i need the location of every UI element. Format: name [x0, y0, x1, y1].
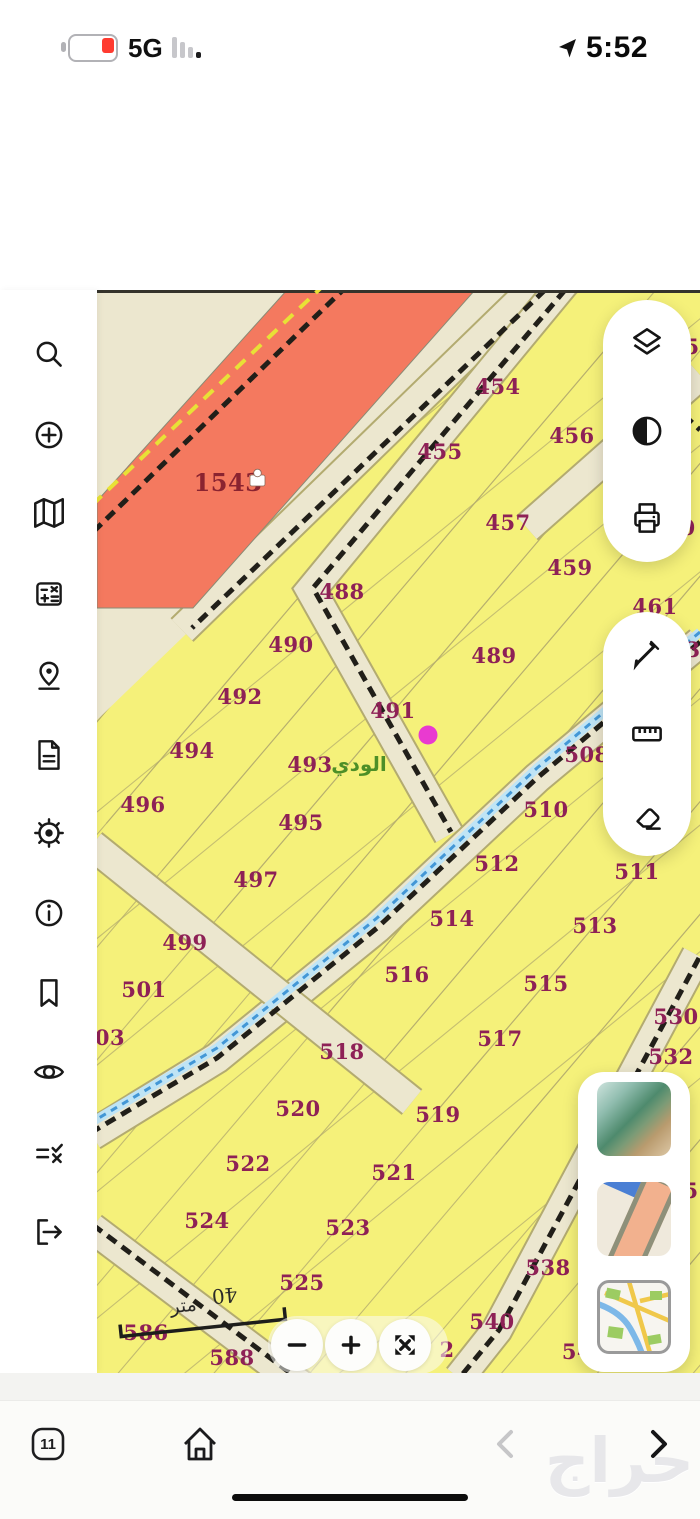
watermark: حراج [545, 1424, 694, 1497]
network-type-label: 5G [128, 33, 163, 64]
sidebar-item-info[interactable] [29, 893, 69, 933]
parcel-label-496: 496 [120, 792, 165, 817]
pencil-icon [626, 632, 668, 674]
battery-icon [68, 34, 118, 62]
parcel-label-510: 510 [523, 797, 568, 822]
parcel-label-538: 538 [525, 1255, 570, 1280]
plus-circle-icon [30, 416, 68, 454]
ruler-icon [626, 713, 668, 755]
info-icon [30, 894, 68, 932]
sidebar-item-settings[interactable] [29, 813, 69, 853]
basemap-panel [578, 1072, 690, 1372]
parcel-label-454: 454 [475, 374, 520, 399]
parcel-label-489: 489 [471, 643, 516, 668]
layers-icon [626, 323, 668, 365]
home-icon [178, 1422, 222, 1466]
parcel-label-517: 517 [477, 1026, 522, 1051]
sidebar-item-basemap[interactable] [29, 494, 69, 534]
place-label-wadi: الودي [331, 752, 387, 777]
svg-text:40: 40 [211, 1282, 239, 1309]
printer-icon [626, 497, 668, 539]
back-button[interactable] [486, 1424, 526, 1464]
parcel-label-530: 530 [653, 1004, 698, 1029]
erase-button[interactable] [626, 794, 668, 836]
tabs-button[interactable]: 11 [28, 1424, 68, 1464]
parcel-label-520: 520 [275, 1096, 320, 1121]
parcel-label-521: 521 [371, 1160, 416, 1185]
parcel-label-488: 488 [319, 579, 364, 604]
map-tools-primary [603, 300, 691, 562]
parcel-label-524: 524 [184, 1208, 229, 1233]
tabs-count: 11 [28, 1424, 68, 1464]
parcel-label-493: 493 [287, 752, 332, 777]
parcel-label-514: 514 [429, 906, 474, 931]
location-pin-icon [30, 656, 68, 694]
parcel-label-512: 512 [474, 851, 519, 876]
sidebar-item-bookmarks[interactable] [29, 973, 69, 1013]
home-indicator[interactable] [232, 1494, 468, 1501]
fullscreen-button[interactable] [379, 1319, 431, 1371]
parcel-label-532: 532 [648, 1044, 693, 1069]
print-button[interactable] [626, 497, 668, 539]
status-bar: 5G 5:52 [0, 0, 700, 92]
basemap-plan-thumb[interactable] [597, 1182, 671, 1256]
parcel-label-456: 456 [549, 423, 594, 448]
parcel-label-525: 525 [279, 1270, 324, 1295]
basemap-satellite-thumb[interactable] [597, 1082, 671, 1156]
contrast-icon [626, 410, 668, 452]
parcel-label-515: 515 [523, 971, 568, 996]
search-icon [30, 336, 68, 374]
sidebar-item-calculate[interactable] [29, 574, 69, 614]
parcel-label-523: 523 [325, 1215, 370, 1240]
clock: 5:52 [586, 31, 648, 65]
calculator-icon [30, 575, 68, 613]
eye-icon [30, 1053, 68, 1091]
parcel-label-511: 511 [614, 859, 659, 884]
sidebar-item-zoom-in[interactable] [29, 415, 69, 455]
parcel-label-partial-03: 03 [97, 1025, 125, 1050]
browser-toolbar: ••• webgis.amanathail.gov.sa [0, 92, 700, 190]
parcel-label-492: 492 [217, 684, 262, 709]
sidebar-item-exit[interactable] [29, 1212, 69, 1252]
draw-button[interactable] [626, 632, 668, 674]
signal-strength-icon [172, 36, 204, 58]
parcel-label-457: 457 [485, 510, 530, 535]
plus-icon [343, 1337, 358, 1352]
home-button[interactable] [178, 1422, 222, 1466]
document-icon [30, 736, 68, 774]
parcel-label-501: 501 [121, 977, 166, 1002]
parcel-label-519: 519 [415, 1102, 460, 1127]
measure-button[interactable] [626, 713, 668, 755]
parcel-label-497: 497 [233, 867, 278, 892]
map-tools-secondary [603, 612, 691, 856]
sidebar-item-search[interactable] [29, 335, 69, 375]
svg-text:متر: متر [168, 1294, 198, 1319]
bookmark-icon [30, 974, 68, 1012]
parcel-label-513: 513 [572, 913, 617, 938]
parcel-label-518: 518 [319, 1039, 364, 1064]
parcel-label-540: 540 [469, 1309, 514, 1334]
contrast-button[interactable] [626, 410, 668, 452]
chevron-left-icon [486, 1424, 526, 1464]
layers-button[interactable] [626, 323, 668, 365]
zoom-in-button[interactable] [325, 1319, 377, 1371]
sign-out-icon [30, 1213, 68, 1251]
sidebar-item-locate[interactable] [29, 655, 69, 695]
parcel-label-499: 499 [162, 930, 207, 955]
expand-icon [392, 1332, 418, 1358]
zoom-controls [268, 1316, 448, 1374]
parcel-label-459: 459 [547, 555, 592, 580]
app-header: المستكشف الجغرافي لأمانة منطقة حائل 32° [0, 190, 700, 290]
side-toolbar [0, 290, 97, 1373]
map-region: 4544554564574594614884894904914924934944… [0, 290, 700, 1373]
parcel-label-494: 494 [169, 738, 214, 763]
parcel-label-516: 516 [384, 962, 429, 987]
parcel-label-522: 522 [225, 1151, 270, 1176]
sidebar-item-visibility[interactable] [29, 1052, 69, 1092]
battery-nub [61, 42, 66, 52]
sidebar-item-layers-list[interactable] [29, 1135, 69, 1175]
selected-point-marker[interactable] [419, 726, 438, 745]
checklist-icon [30, 1136, 68, 1174]
map-icon [30, 495, 68, 533]
parcel-label-588: 588 [209, 1345, 254, 1370]
sidebar-item-reports[interactable] [29, 735, 69, 775]
page-bottom-strip [0, 1373, 700, 1400]
location-arrow-icon [555, 36, 579, 60]
parcel-label-491: 491 [370, 698, 415, 723]
eraser-icon [626, 794, 668, 836]
zoom-out-button[interactable] [271, 1319, 323, 1371]
parcel-label-490: 490 [268, 632, 313, 657]
gear-icon [30, 814, 68, 852]
basemap-streets-thumb[interactable] [597, 1280, 671, 1354]
parcel-label-495: 495 [278, 810, 323, 835]
parcel-label-455: 455 [417, 439, 462, 464]
